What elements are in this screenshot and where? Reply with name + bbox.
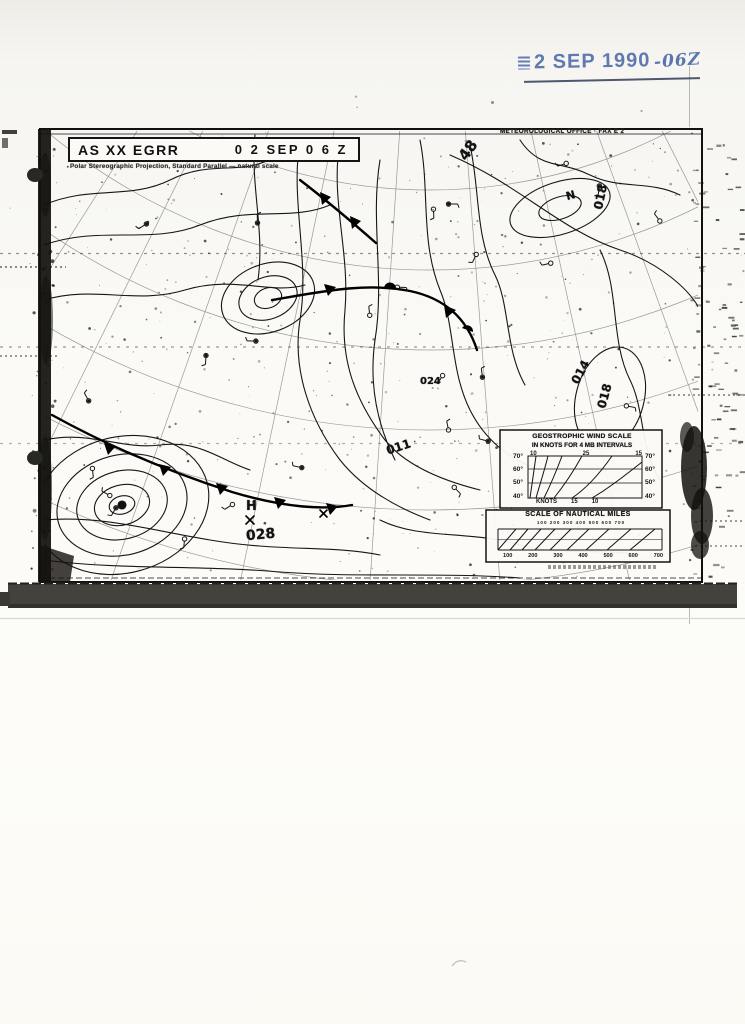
wind-scale-subtitle: IN KNOTS FOR 4 MB INTERVALS [504,442,660,449]
tick: 400 [578,553,587,559]
tick: 600 [629,553,638,559]
isobar-label: 024 [420,377,441,387]
stamp-prefix-icon [518,56,530,69]
high-centre-label: H [246,500,257,513]
chart-id: AS XX EGRR [78,142,179,158]
tick: 200 [528,553,537,559]
tick: 15 [635,451,642,457]
latitude-label: 40° [645,493,655,500]
tick: 10 [592,499,599,505]
tick: 100 [503,553,512,559]
chart-datetime: 0 2 SEP 0 6 Z [235,142,348,157]
tick: 500 [603,553,612,559]
scanned-weather-chart-page: { "stamp": { "date": "2 SEP 1990", "zulu… [0,0,745,1024]
latitude-label: 50° [513,479,523,486]
date-stamp: 2 SEP 1990 -06Z [518,48,702,74]
latitude-label: 50° [645,479,655,486]
nautical-scale-upper-ticks: 100 200 300 400 500 600 700 [502,520,660,525]
stamp-date: 2 SEP 1990 [534,49,651,74]
latitude-label: 70° [513,453,523,460]
illegible-fine-print [548,565,658,569]
tick: 25 [583,451,590,457]
tick: 15 [571,499,578,505]
knots-label: KNOTS [536,499,557,505]
wind-scale-title: GEOSTROPHIC WIND SCALE [504,433,660,440]
nautical-scale-title: SCALE OF NAUTICAL MILES [490,511,666,518]
latitude-label: 70° [645,453,655,460]
bottom-scan-bar [0,584,737,609]
nautical-scale-lower-ticks: 100 200 300 400 500 600 700 [503,553,663,559]
latitude-label: 60° [513,466,523,473]
tick: 700 [654,553,663,559]
tick: 300 [553,553,562,559]
chart-title-box: AS XX EGRR 0 2 SEP 0 6 Z [68,137,360,162]
latitude-label: 60° [645,466,655,473]
isobar-label: 028 [245,527,275,543]
tick: 10 [530,451,537,457]
wind-scale-top-ticks: 10 25 15 [530,451,642,457]
weather-fronts [52,180,477,524]
stray-mark [491,101,494,104]
wind-scale-bottom-ticks: KNOTS 15 10 [536,499,632,505]
chart-projection-note: Polar Stereographic Projection, Standard… [70,163,370,170]
stamp-zulu-time: -06Z [654,49,702,72]
met-office-line: METEOROLOGICAL OFFICE · FAX E 2 [500,128,690,135]
latitude-label: 40° [513,493,523,500]
